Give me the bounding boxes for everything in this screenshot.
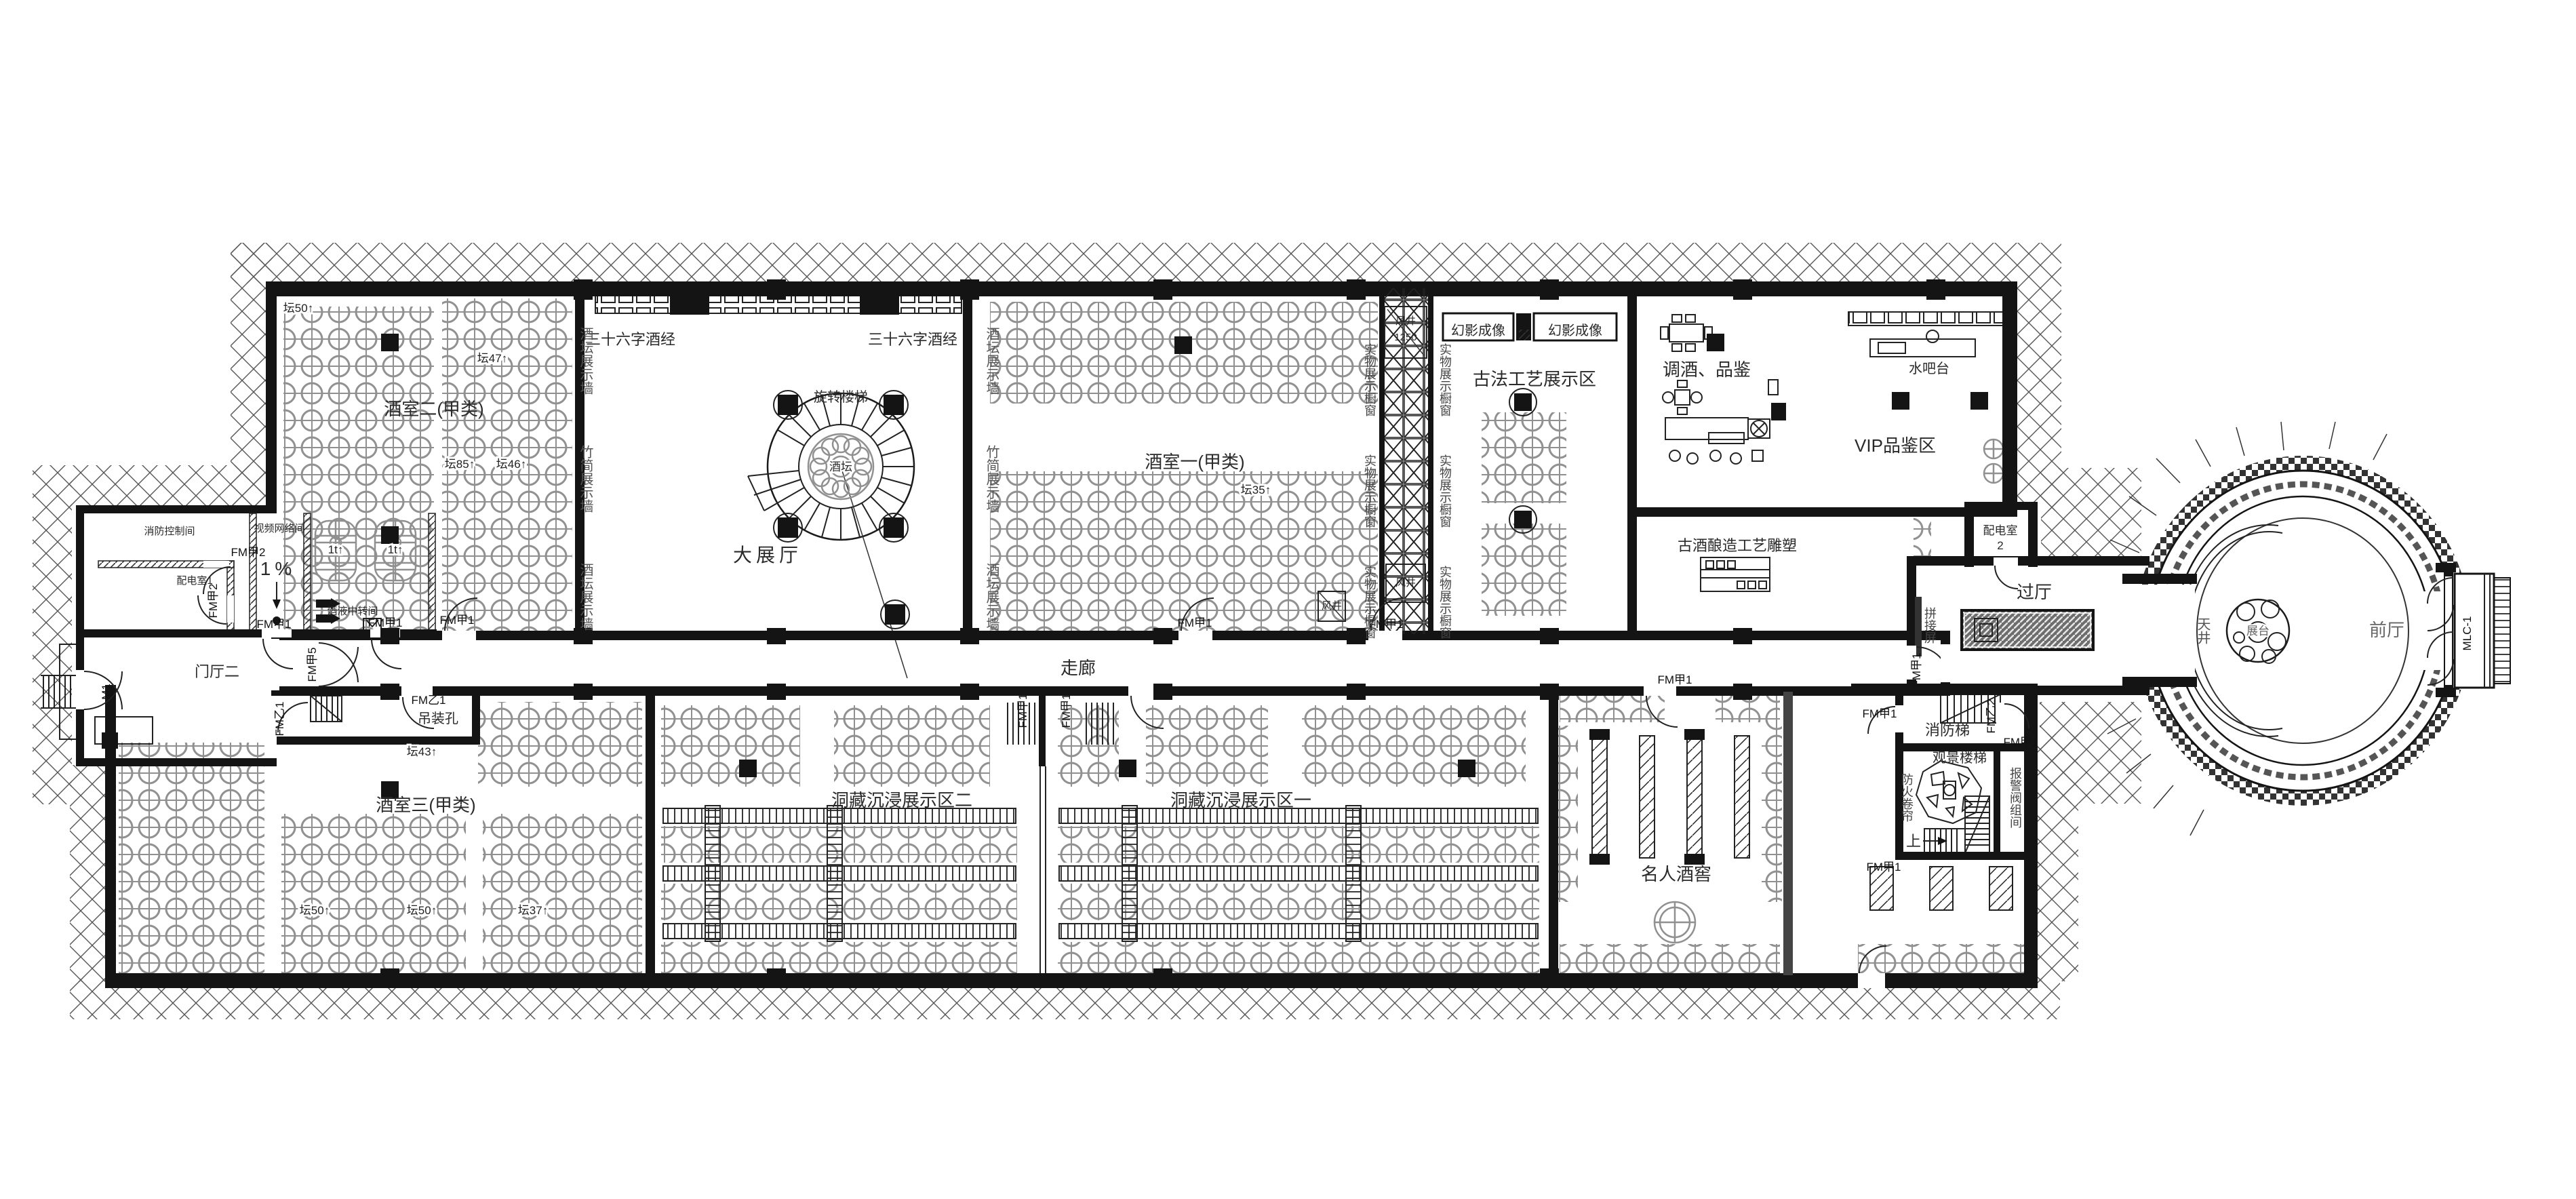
door-fm-yi2-a: FM乙2 — [1985, 699, 1998, 734]
count-jars-50-a: 坛50↑ — [283, 302, 313, 315]
label-hoisting-hole: 吊装孔 — [418, 711, 458, 726]
label-corridor: 走廊 — [1061, 658, 1096, 678]
door-fm-yi1-b: FM乙1 — [273, 702, 286, 736]
label-air-shaft-3: 风井 — [1322, 600, 1342, 612]
label-mixology: 调酒、品鉴 — [1663, 359, 1751, 380]
door-fm-jia1-h: FM甲1 — [1658, 673, 1692, 686]
wall-alarm-valve: 报警阀组间 — [2008, 767, 2022, 828]
count-jars-50-c: 坛50↑ — [407, 904, 437, 917]
door-fm-jia2-a: FM甲2 — [231, 546, 266, 559]
label-scripture-right: 三十六字酒经 — [868, 331, 957, 348]
label-fire-control: 消防控制间 — [144, 526, 195, 537]
count-jars-35: 坛35↑ — [1241, 484, 1271, 496]
label-slope: 1% — [260, 558, 296, 579]
door-mlc1: MLC-1 — [2461, 616, 2474, 650]
label-wine-transfer: 酒液中转间 — [327, 606, 378, 617]
label-ancient-craft: 古法工艺展示区 — [1473, 369, 1596, 389]
door-fm-yi1-a: FM乙1 — [412, 694, 446, 707]
floor-plan-canvas: 酒室二(甲类) 酒室一(甲类) 酒室三(甲类) 大展厅 三十六字酒经 三十六字酒… — [0, 0, 2576, 1199]
count-jars-46: 坛46↑ — [496, 458, 526, 471]
door-m1: M1 — [100, 684, 113, 700]
count-jars-50-b: 坛50↑ — [300, 904, 330, 917]
door-fm-jia1-f: FM甲1 — [1016, 694, 1029, 728]
count-jars-43: 坛43↑ — [407, 745, 437, 758]
label-air-shaft-1-no: 1250 — [1394, 332, 1416, 343]
label-front-hall: 前厅 — [2369, 620, 2404, 640]
door-fm-jia1-k: FM甲1 — [2004, 736, 2038, 749]
wall-jar-display-e2: 酒坛展示墙 — [984, 563, 999, 631]
wall-jar-display-e1: 酒坛展示墙 — [984, 327, 999, 395]
label-scripture-left: 三十六字酒经 — [586, 331, 675, 348]
door-fm-jia1-i: FM甲1 — [1863, 707, 1897, 720]
label-scenic-stair: 观景楼梯 — [1933, 750, 1987, 766]
count-jars-85: 坛85↑ — [445, 458, 475, 471]
wall-splice-screen: 拼接屏 — [1923, 607, 1937, 644]
count-tank-1: 1t↑ — [328, 543, 344, 556]
count-tank-2: 1t↑ — [388, 543, 403, 556]
circular-front-hall — [2107, 422, 2471, 836]
count-jars-37: 坛37↑ — [518, 904, 548, 917]
label-celebrity-cellar: 名人酒窖 — [1641, 864, 1711, 884]
label-fire-stair: 消防梯 — [1925, 722, 1970, 739]
label-display-stand: 展台 — [2246, 625, 2270, 637]
label-up: 上 — [1906, 833, 1921, 850]
wall-showcase-l3: 实物展示橱窗 — [1363, 566, 1376, 639]
wall-bamboo-e: 竹简展示墙 — [984, 445, 999, 513]
label-dist-room-2-no: 2 — [1997, 539, 2003, 552]
door-fm-jia1-g: FM甲1 — [1060, 694, 1073, 728]
wall-showcase-l2: 实物展示橱窗 — [1363, 454, 1376, 528]
label-immersive-2: 洞藏沉浸展示区二 — [831, 790, 972, 810]
wall-showcase-l1: 实物展示橱窗 — [1363, 343, 1376, 416]
label-vip: VIP品鉴区 — [1855, 435, 1936, 456]
wall-showcase-r2: 实物展示橱窗 — [1438, 454, 1452, 528]
wall-bamboo-w: 竹简展示墙 — [578, 445, 593, 513]
label-phantom-2: 幻影成像 — [1548, 323, 1602, 338]
label-air-shaft-2: 风井 — [1395, 577, 1416, 589]
wall-atrium: 天井 — [2195, 617, 2211, 644]
count-jars-47: 坛47↑ — [477, 352, 507, 365]
door-fm-jia1-a: FM甲1 — [257, 618, 292, 631]
label-wine-room-3: 酒室三(甲类) — [376, 795, 475, 815]
label-sculpture: 古酒酿造工艺雕塑 — [1678, 537, 1797, 554]
label-grand-hall: 大展厅 — [733, 545, 802, 566]
label-wine-jar: 酒坛 — [829, 460, 852, 473]
label-dist-room-2: 配电室 — [1983, 524, 2018, 537]
label-entrance-hall-2: 门厅二 — [195, 663, 239, 680]
wall-jar-display-w2: 酒坛展示墙 — [578, 563, 593, 631]
label-immersive-1: 洞藏沉浸展示区一 — [1170, 790, 1311, 810]
door-fm-jia1-l: FM甲1 — [1910, 653, 1923, 688]
door-fm-jia5: FM甲5 — [306, 648, 319, 682]
label-video-network: 视频网络间 — [254, 523, 304, 534]
door-fm-jia1-b: FM甲1 — [368, 616, 403, 629]
label-spiral-stair: 旋转楼梯 — [814, 389, 868, 405]
label-phantom-1: 幻影成像 — [1451, 323, 1505, 338]
door-fm-jia2-b: FM甲2 — [207, 584, 220, 618]
label-wine-room-2: 酒室二(甲类) — [384, 399, 483, 419]
door-fm-jia1-j: FM甲1 — [1867, 861, 1901, 873]
wall-showcase-r1: 实物展示橱窗 — [1438, 343, 1452, 416]
label-wine-room-1: 酒室一(甲类) — [1145, 452, 1244, 472]
door-fm-jia1-c: FM甲1 — [440, 614, 475, 627]
label-transition-hall: 过厅 — [2017, 582, 2052, 602]
wall-fire-shutter: 防火卷帘 — [1900, 773, 1914, 822]
wall-showcase-r3: 实物展示橱窗 — [1438, 566, 1452, 639]
label-water-bar: 水吧台 — [1909, 361, 1949, 376]
label-air-shaft-1: 风井 — [1395, 315, 1416, 327]
door-fm-jia1-d: FM甲1 — [1178, 616, 1212, 629]
wall-jar-display-w1: 酒坛展示墙 — [578, 327, 593, 395]
